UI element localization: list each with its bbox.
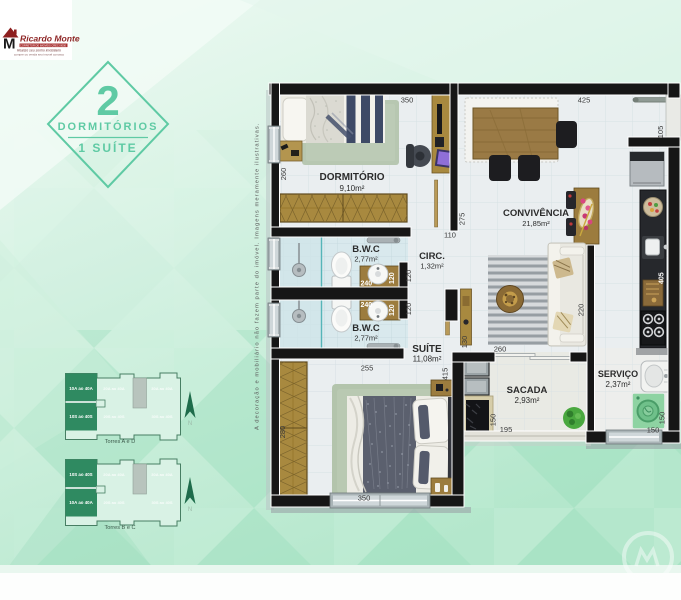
- svg-text:110: 110: [444, 231, 456, 240]
- svg-text:405: 405: [659, 272, 666, 284]
- svg-text:Torres A e D: Torres A e D: [105, 439, 135, 445]
- svg-text:2,93m²: 2,93m²: [515, 396, 540, 405]
- svg-text:N: N: [188, 421, 192, 427]
- svg-text:11,08m²: 11,08m²: [413, 355, 442, 364]
- svg-text:21,85m²: 21,85m²: [522, 219, 550, 228]
- svg-text:30A ao 40A: 30A ao 40A: [151, 472, 173, 477]
- svg-text:Ricardo Monte: Ricardo Monte: [20, 34, 80, 44]
- svg-text:130: 130: [460, 336, 469, 349]
- svg-text:1 SUÍTE: 1 SUÍTE: [78, 140, 137, 155]
- svg-text:10A ao 40A: 10A ao 40A: [69, 386, 93, 391]
- svg-text:20S ao 40S: 20S ao 40S: [103, 414, 124, 419]
- svg-text:A decoração e mobiliário não f: A decoração e mobiliário não fazem parte…: [255, 122, 261, 430]
- svg-text:2,77m²: 2,77m²: [354, 255, 378, 264]
- svg-text:CONVIVÊNCIA: CONVIVÊNCIA: [503, 207, 569, 219]
- svg-text:SUÍTE: SUÍTE: [412, 342, 442, 355]
- svg-text:30A ao 40A: 30A ao 40A: [151, 386, 173, 391]
- svg-text:120: 120: [389, 272, 396, 284]
- svg-text:DORMITÓRIOS: DORMITÓRIOS: [58, 120, 159, 133]
- svg-text:120: 120: [404, 270, 413, 283]
- svg-text:220: 220: [577, 304, 586, 317]
- svg-text:B.W.C: B.W.C: [352, 244, 380, 255]
- svg-text:20A ao 40A: 20A ao 40A: [103, 386, 125, 391]
- svg-text:DORMITÓRIO: DORMITÓRIO: [320, 170, 385, 183]
- svg-text:10A ao 40A: 10A ao 40A: [69, 500, 93, 505]
- svg-text:275: 275: [458, 213, 467, 226]
- svg-text:SACADA: SACADA: [507, 385, 548, 396]
- svg-text:20S ao 40S: 20S ao 40S: [103, 500, 124, 505]
- svg-text:240: 240: [361, 302, 373, 309]
- svg-text:30S ao 40S: 30S ao 40S: [151, 414, 172, 419]
- svg-text:150: 150: [658, 412, 667, 425]
- svg-text:CORRETOR DE IMOVEIS CRECI 0000: CORRETOR DE IMOVEIS CRECI 0000: [20, 43, 66, 47]
- svg-text:120: 120: [404, 303, 413, 316]
- svg-text:2,77m²: 2,77m²: [354, 334, 378, 343]
- svg-text:150: 150: [489, 414, 498, 427]
- svg-text:425: 425: [578, 96, 591, 105]
- svg-text:255: 255: [361, 364, 374, 373]
- svg-text:2,37m²: 2,37m²: [606, 380, 631, 389]
- svg-text:1,32m²: 1,32m²: [420, 262, 444, 271]
- svg-text:240: 240: [361, 281, 373, 288]
- svg-text:B.W.C: B.W.C: [352, 323, 380, 334]
- svg-text:120: 120: [389, 304, 396, 316]
- svg-text:SERVIÇO: SERVIÇO: [598, 369, 638, 379]
- svg-text:195: 195: [500, 425, 513, 434]
- svg-text:Torres B e C: Torres B e C: [104, 525, 135, 531]
- svg-text:150: 150: [647, 426, 660, 435]
- svg-text:10S ao 40S: 10S ao 40S: [69, 414, 92, 419]
- svg-text:CIRC.: CIRC.: [419, 251, 445, 262]
- svg-text:N: N: [188, 507, 192, 513]
- svg-text:105: 105: [656, 126, 665, 139]
- svg-text:20A ao 40A: 20A ao 40A: [103, 472, 125, 477]
- svg-text:M: M: [3, 36, 16, 53]
- svg-text:260: 260: [494, 345, 507, 354]
- svg-text:350: 350: [358, 494, 371, 503]
- svg-text:415: 415: [441, 368, 450, 381]
- svg-text:9,10m²: 9,10m²: [340, 184, 365, 193]
- svg-text:2: 2: [96, 77, 119, 124]
- svg-text:260: 260: [279, 168, 288, 181]
- svg-text:10S ao 40S: 10S ao 40S: [69, 472, 92, 477]
- svg-text:280: 280: [278, 426, 287, 439]
- svg-text:350: 350: [401, 96, 414, 105]
- svg-text:compre ou venda seu imovel con: compre ou venda seu imovel conosco: [14, 53, 65, 57]
- svg-text:30S ao 40S: 30S ao 40S: [151, 500, 172, 505]
